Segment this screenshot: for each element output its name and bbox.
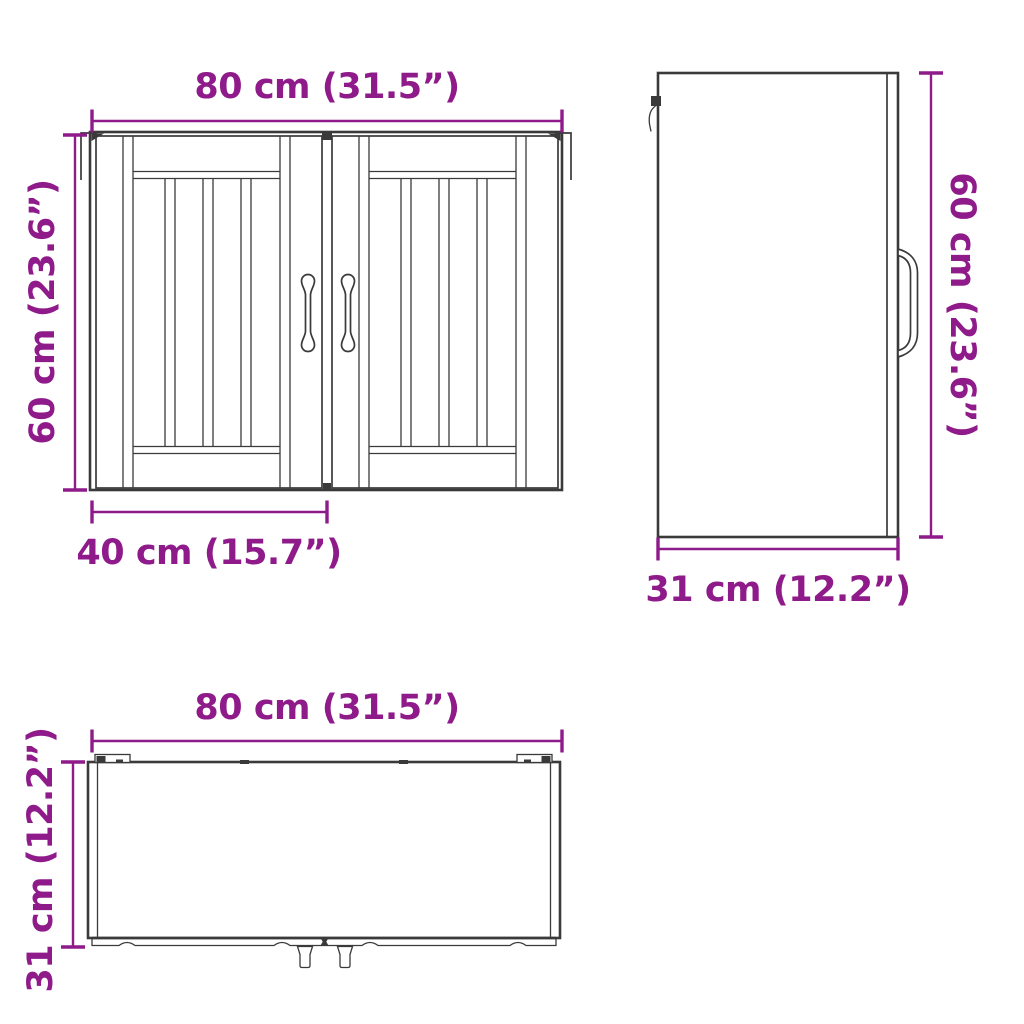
right-door-outline [332,136,558,488]
hinge-top-left [95,755,130,763]
side-depth-dimension: 31 cm (12.2”) [645,538,910,611]
door-gap-bottom-shadow [323,483,331,490]
front-height-label: 60 cm (23.6”) [23,179,63,444]
side-panel-thickness-lines [98,762,551,938]
back-rail-mark [240,760,249,764]
front-door-width-dimension: 40 cm (15.7”) [76,501,341,574]
left-door-outline [96,136,322,488]
left-knob-top [298,947,313,968]
left-door [96,136,322,488]
hinge-block [97,756,106,763]
right-knob-top [338,947,353,968]
diagram-canvas: 80 cm (31.5”) 60 cm (23.6”) 40 cm (15.7”… [0,0,1024,1024]
side-view [649,73,917,537]
left-door-rails [133,172,280,454]
front-view [81,132,571,490]
hinge-top-right [517,755,552,763]
side-door-handle [898,249,918,357]
front-height-dimension: 60 cm (23.6”) [23,135,87,490]
hinge-mark-top-left [92,134,105,142]
left-door-panel-grooves [165,179,251,447]
side-height-dimension: 60 cm (23.6”) [919,73,982,537]
right-door-rails [369,172,516,454]
cabinet-front-outline [90,132,562,490]
top-width-dimension: 80 cm (31.5”) [92,688,562,753]
hinge-screw [116,760,123,763]
hinge-screw [524,760,531,763]
door-gap-top-shadow [322,132,332,140]
cabinet-top-outline [88,762,560,938]
right-door-stiles [359,136,526,488]
side-height-label: 60 cm (23.6”) [942,172,982,437]
left-door-stiles [123,136,290,488]
side-depth-label: 31 cm (12.2”) [645,570,910,610]
wall-bracket-hook [649,106,655,132]
top-depth-dimension: 31 cm (12.2”) [21,727,85,992]
top-depth-label: 31 cm (12.2”) [21,727,61,992]
right-door-panel-grooves [401,179,487,447]
left-door-handle [302,275,315,352]
right-door-handle [342,275,355,352]
top-view [88,755,560,968]
cabinet-side-outline [658,73,898,537]
front-width-label: 80 cm (31.5”) [194,67,459,107]
right-door [332,136,558,488]
hinge-block [542,756,551,763]
wall-bracket-icon [651,96,661,106]
front-door-width-label: 40 cm (15.7”) [76,533,341,573]
back-rail-mark [399,760,408,764]
cabinet-dimension-diagram: 80 cm (31.5”) 60 cm (23.6”) 40 cm (15.7”… [0,0,1024,1024]
door-divider-mark [321,938,329,946]
front-width-dimension: 80 cm (31.5”) [92,67,562,133]
top-width-label: 80 cm (31.5”) [194,688,459,728]
